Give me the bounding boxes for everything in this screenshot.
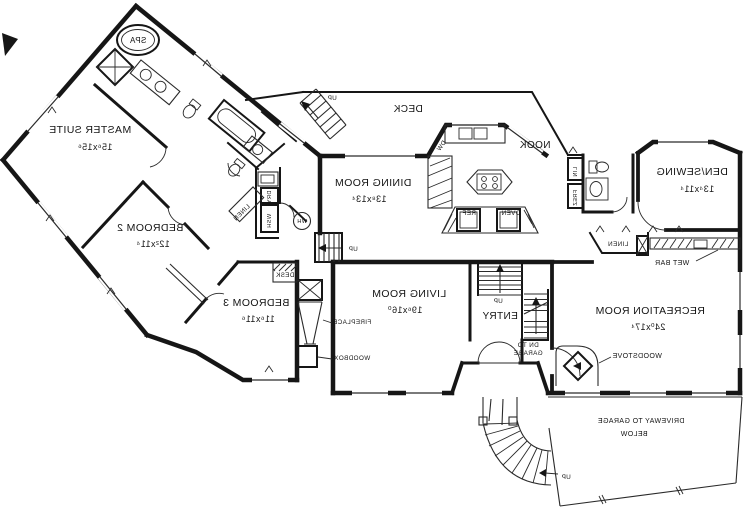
label-fireplace: FIREPLACE	[333, 319, 372, 326]
label-dining-room: DINING ROOM	[335, 177, 412, 189]
label-master-suite: MASTER SUITE	[49, 124, 131, 136]
label-water-heater: WH	[297, 219, 307, 225]
label-dn-line2: GARAGE	[513, 350, 542, 357]
label-bedroom-2: BEDROOM 2	[117, 222, 184, 234]
label-up-entry: UP	[493, 298, 503, 305]
floor-plan-page: MASTER SUITE 15⁶x15⁶ BEDROOM 2 12²x11⁴ B…	[0, 0, 750, 507]
label-recreation-room: RECREATION ROOM	[595, 305, 705, 317]
label-den-sewing-dims: 13⁴x11⁴	[680, 184, 714, 194]
label-desk: DESK	[275, 272, 294, 279]
label-washer: WSH	[267, 214, 273, 228]
floor-plan-canvas: MASTER SUITE 15⁶x15⁶ BEDROOM 2 12²x11⁴ B…	[0, 0, 750, 507]
label-up-deck: UP	[327, 95, 337, 102]
label-living-room: LIVING ROOM	[372, 288, 446, 300]
label-oven: OVEN	[501, 210, 520, 217]
label-linen-bar: LINEN	[608, 241, 629, 248]
label-spa: SPA	[129, 36, 146, 45]
label-woodbox: WOODBOX	[333, 355, 370, 362]
label-freezer: FREZ	[573, 190, 579, 206]
label-dn-line1: DN TO	[517, 342, 538, 349]
label-dining-room-dims: 13⁸x13⁴	[352, 194, 387, 204]
label-bedroom-3: BEDROOM 3	[223, 297, 290, 309]
label-up-hall: UP	[348, 246, 358, 253]
label-lin-closet: LIN	[573, 167, 579, 177]
label-nook: NOOK	[519, 140, 550, 151]
label-up-drive: UP	[561, 474, 571, 481]
label-driveway-line2: BELOW	[620, 431, 647, 438]
label-bedroom-3-dims: 11⁶x11⁶	[241, 314, 274, 324]
label-deck: DECK	[393, 104, 422, 115]
label-bedroom-2-dims: 12²x11⁴	[136, 239, 170, 249]
label-entry: ENTRY	[482, 311, 518, 322]
label-refrigerator: REF	[462, 210, 476, 217]
label-driveway-line1: DRIVEWAY TO GARAGE	[598, 418, 685, 425]
label-master-suite-dims: 15⁶x15⁶	[78, 142, 113, 152]
label-dryer: DRY	[267, 191, 273, 204]
label-recreation-room-dims: 24⁰x17⁴	[631, 322, 666, 332]
label-woodstove: WOODSTOVE	[612, 353, 662, 360]
label-living-room-dims: 19⁶x16⁰	[388, 305, 423, 315]
label-wet-bar: WET BAR	[655, 260, 690, 267]
label-den-sewing: DEN/SEWING	[656, 166, 728, 178]
